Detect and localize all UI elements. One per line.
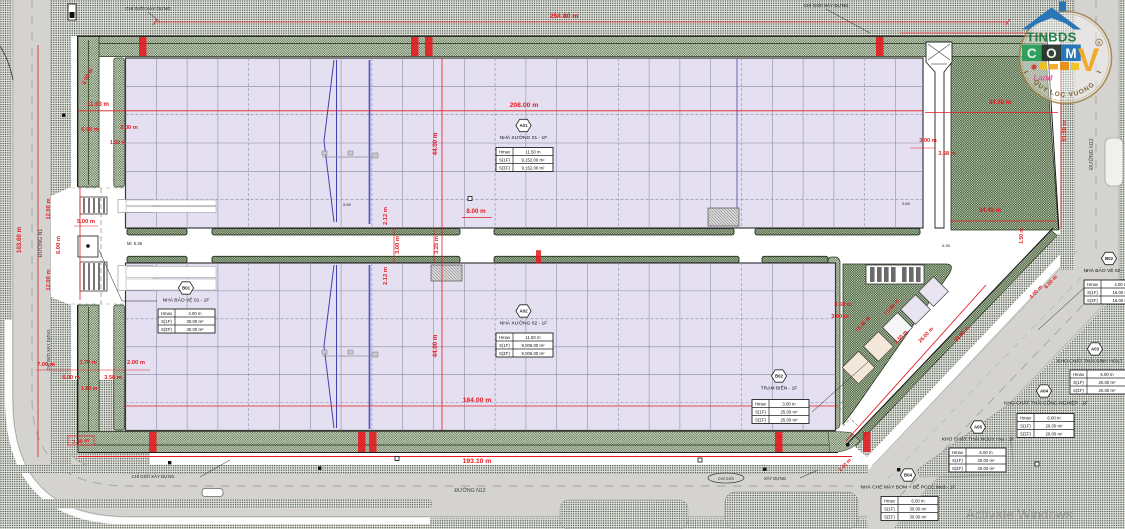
svg-text:Hmax: Hmax bbox=[499, 149, 511, 154]
svg-text:S(ΣF): S(ΣF) bbox=[499, 165, 511, 170]
svg-text:51.30 m: 51.30 m bbox=[1062, 120, 1068, 141]
svg-text:S(1F): S(1F) bbox=[952, 458, 963, 463]
svg-text:16.00 m²: 16.00 m² bbox=[1113, 290, 1125, 295]
svg-text:KHO CHẤT THẢI SINH HOẠT: KHO CHẤT THẢI SINH HOẠT bbox=[1057, 358, 1123, 365]
svg-text:NHÀ CHE MÁY BƠM + BỂ PCCC 9m3: NHÀ CHE MÁY BƠM + BỂ PCCC 9m3 - 1F bbox=[860, 484, 955, 491]
svg-text:O: O bbox=[1046, 46, 1057, 61]
svg-text:3.00 m: 3.00 m bbox=[782, 401, 796, 406]
svg-text:20.00 m²: 20.00 m² bbox=[1046, 431, 1064, 436]
svg-text:TINBDS: TINBDS bbox=[1026, 30, 1076, 45]
svg-text:9,006.00 m²: 9,006.00 m² bbox=[522, 343, 545, 348]
svg-text:25.00 m²: 25.00 m² bbox=[781, 409, 799, 414]
svg-text:208.00 m: 208.00 m bbox=[510, 102, 539, 109]
svg-text:34.42 m: 34.42 m bbox=[979, 208, 1001, 214]
svg-text:B02: B02 bbox=[775, 374, 784, 379]
svg-text:S(ΣF): S(ΣF) bbox=[1087, 298, 1099, 303]
svg-text:25.00 m²: 25.00 m² bbox=[781, 417, 799, 422]
svg-text:S(1F): S(1F) bbox=[1073, 380, 1084, 385]
svg-text:184.00 m: 184.00 m bbox=[463, 397, 492, 404]
svg-text:30.00 m²: 30.00 m² bbox=[187, 327, 205, 332]
svg-text:20.00 m²: 20.00 m² bbox=[978, 466, 996, 471]
svg-text:B04: B04 bbox=[904, 473, 913, 478]
svg-text:ĐƯỜNG N1: ĐƯỜNG N1 bbox=[37, 229, 44, 258]
svg-text:4.00 m: 4.00 m bbox=[1114, 282, 1125, 287]
svg-text:3.00 m: 3.00 m bbox=[919, 138, 936, 144]
svg-text:12.00 m: 12.00 m bbox=[46, 198, 52, 219]
svg-text:S(ΣF): S(ΣF) bbox=[499, 351, 511, 356]
svg-text:2.00 m: 2.00 m bbox=[127, 360, 145, 366]
svg-text:8.00 m: 8.00 m bbox=[466, 208, 486, 215]
svg-text:M: M bbox=[1065, 46, 1076, 61]
svg-text:6.00 m: 6.00 m bbox=[56, 236, 62, 254]
svg-text:3.70 m: 3.70 m bbox=[79, 360, 96, 366]
svg-text:9,152.00 m²: 9,152.00 m² bbox=[522, 165, 545, 170]
svg-text:6.00 m: 6.00 m bbox=[1047, 415, 1061, 420]
svg-text:B02: B02 bbox=[1105, 256, 1114, 261]
svg-text:11.50 m: 11.50 m bbox=[525, 149, 541, 154]
svg-text:12.00 m: 12.00 m bbox=[46, 269, 52, 290]
svg-text:34.80 m: 34.80 m bbox=[989, 100, 1011, 106]
svg-text:KHO CHẤT THẢI NGUY HẠI - 1F: KHO CHẤT THẢI NGUY HẠI - 1F bbox=[942, 436, 1015, 443]
svg-text:20.00 m²: 20.00 m² bbox=[1099, 380, 1117, 385]
svg-text:CHỈ GIỚI XÂY DỰNG: CHỈ GIỚI XÂY DỰNG bbox=[803, 2, 848, 8]
svg-text:Hmax: Hmax bbox=[1073, 372, 1085, 377]
svg-text:NHÀ XƯỞNG 01 - 1F: NHÀ XƯỞNG 01 - 1F bbox=[500, 134, 548, 141]
svg-text:XÂY DỰNG: XÂY DỰNG bbox=[764, 476, 786, 481]
svg-text:30.00 m²: 30.00 m² bbox=[910, 514, 928, 519]
svg-text:S(1F): S(1F) bbox=[884, 506, 895, 511]
svg-text:C: C bbox=[1027, 46, 1037, 61]
svg-text:9.89: 9.89 bbox=[343, 202, 352, 207]
svg-text:CHỈ GIỚI: CHỈ GIỚI bbox=[718, 476, 734, 481]
svg-text:Mi: 6.35: Mi: 6.35 bbox=[127, 241, 143, 246]
svg-text:20.00 m²: 20.00 m² bbox=[978, 458, 996, 463]
svg-text:S(ΣF): S(ΣF) bbox=[1073, 388, 1085, 393]
svg-text:Hmax: Hmax bbox=[884, 498, 896, 503]
svg-text:3.58 m: 3.58 m bbox=[104, 375, 121, 381]
svg-text:TRẠM BIẾN - 1F: TRẠM BIẾN - 1F bbox=[761, 385, 798, 392]
svg-text:9,006.00 m²: 9,006.00 m² bbox=[522, 351, 545, 356]
svg-text:S(1F): S(1F) bbox=[161, 319, 172, 324]
svg-text:6.00 m: 6.00 m bbox=[979, 450, 993, 455]
svg-text:16.00 m²: 16.00 m² bbox=[1113, 298, 1125, 303]
svg-text:A03: A03 bbox=[1091, 347, 1100, 352]
svg-text:S(1F): S(1F) bbox=[755, 409, 766, 414]
svg-text:S(ΣF): S(ΣF) bbox=[884, 514, 896, 519]
svg-text:2.00 m: 2.00 m bbox=[120, 125, 137, 131]
svg-text:6.00 m: 6.00 m bbox=[911, 498, 925, 503]
svg-text:193.10 m: 193.10 m bbox=[463, 458, 492, 465]
svg-text:NHÀ XƯỞNG 02 - 1F: NHÀ XƯỞNG 02 - 1F bbox=[500, 320, 548, 327]
svg-text:S(ΣF): S(ΣF) bbox=[161, 327, 173, 332]
svg-text:1.50 m: 1.50 m bbox=[1019, 228, 1025, 244]
svg-text:44.00 m: 44.00 m bbox=[432, 334, 439, 357]
svg-text:6.35: 6.35 bbox=[942, 243, 951, 248]
svg-text:Hmax: Hmax bbox=[1087, 282, 1099, 287]
svg-text:3.00 m: 3.00 m bbox=[395, 236, 401, 254]
svg-text:S(1F): S(1F) bbox=[1087, 290, 1098, 295]
svg-text:ĐƯỜNG N12: ĐƯỜNG N12 bbox=[454, 487, 485, 494]
svg-text:3.25 m: 3.25 m bbox=[434, 236, 440, 254]
svg-text:Activate Windows: Activate Windows bbox=[966, 507, 1073, 522]
svg-text:4.00 m: 4.00 m bbox=[188, 311, 202, 316]
svg-text:S(1F): S(1F) bbox=[499, 157, 510, 162]
svg-text:S(ΣF): S(ΣF) bbox=[952, 466, 964, 471]
svg-text:9,152.00 m²: 9,152.00 m² bbox=[522, 157, 545, 162]
svg-text:30.00 m²: 30.00 m² bbox=[910, 506, 928, 511]
svg-text:B01: B01 bbox=[182, 286, 191, 291]
svg-text:Hmax: Hmax bbox=[952, 450, 964, 455]
svg-text:3.00 m: 3.00 m bbox=[831, 314, 848, 320]
svg-text:20.00 m²: 20.00 m² bbox=[1046, 423, 1064, 428]
svg-text:A02: A02 bbox=[519, 309, 528, 314]
svg-text:30.00 m²: 30.00 m² bbox=[187, 319, 205, 324]
svg-text:A04: A04 bbox=[1040, 389, 1049, 394]
svg-text:CHỈ GIỚI XÂY DỰNG: CHỈ GIỚI XÂY DỰNG bbox=[46, 329, 51, 370]
svg-text:44.00 m: 44.00 m bbox=[432, 132, 439, 155]
svg-text:ĐƯỜNG N12: ĐƯỜNG N12 bbox=[1088, 138, 1095, 169]
svg-text:6.00 m: 6.00 m bbox=[62, 375, 79, 381]
svg-text:A05: A05 bbox=[974, 425, 983, 430]
svg-text:103.60 m: 103.60 m bbox=[16, 226, 23, 253]
svg-text:9.89: 9.89 bbox=[902, 201, 911, 206]
svg-text:1.89 m: 1.89 m bbox=[81, 386, 98, 392]
svg-text:Hmax: Hmax bbox=[161, 311, 173, 316]
svg-text:Hmax: Hmax bbox=[1020, 415, 1032, 420]
svg-text:CHỈ GIỚI XÂY DỰNG: CHỈ GIỚI XÂY DỰNG bbox=[131, 474, 175, 479]
svg-text:2.12 m: 2.12 m bbox=[383, 207, 389, 225]
svg-text:2.12 m: 2.12 m bbox=[383, 267, 389, 285]
svg-text:3.50 m: 3.50 m bbox=[834, 302, 851, 308]
svg-text:3.58 m: 3.58 m bbox=[938, 151, 955, 157]
svg-text:6.00 m: 6.00 m bbox=[1100, 372, 1114, 377]
svg-text:1.50 m: 1.50 m bbox=[110, 140, 127, 146]
svg-text:A01: A01 bbox=[519, 123, 528, 128]
svg-text:6.98 m: 6.98 m bbox=[81, 127, 98, 133]
svg-text:Hmax: Hmax bbox=[499, 335, 511, 340]
svg-text:S(ΣF): S(ΣF) bbox=[1020, 431, 1032, 436]
svg-text:254.80 m: 254.80 m bbox=[550, 13, 579, 20]
svg-text:S(1F): S(1F) bbox=[499, 343, 510, 348]
svg-text:20.00 m²: 20.00 m² bbox=[1099, 388, 1117, 393]
svg-text:S(1F): S(1F) bbox=[1020, 423, 1031, 428]
svg-text:V: V bbox=[1078, 42, 1100, 78]
svg-text:11.93 m: 11.93 m bbox=[87, 102, 109, 108]
svg-text:S(ΣF): S(ΣF) bbox=[755, 417, 767, 422]
svg-text:11.50 m: 11.50 m bbox=[525, 335, 541, 340]
svg-text:Hmax: Hmax bbox=[755, 401, 767, 406]
svg-text:CHỈ GIỚI XÂY DỰNG: CHỈ GIỚI XÂY DỰNG bbox=[125, 5, 170, 11]
